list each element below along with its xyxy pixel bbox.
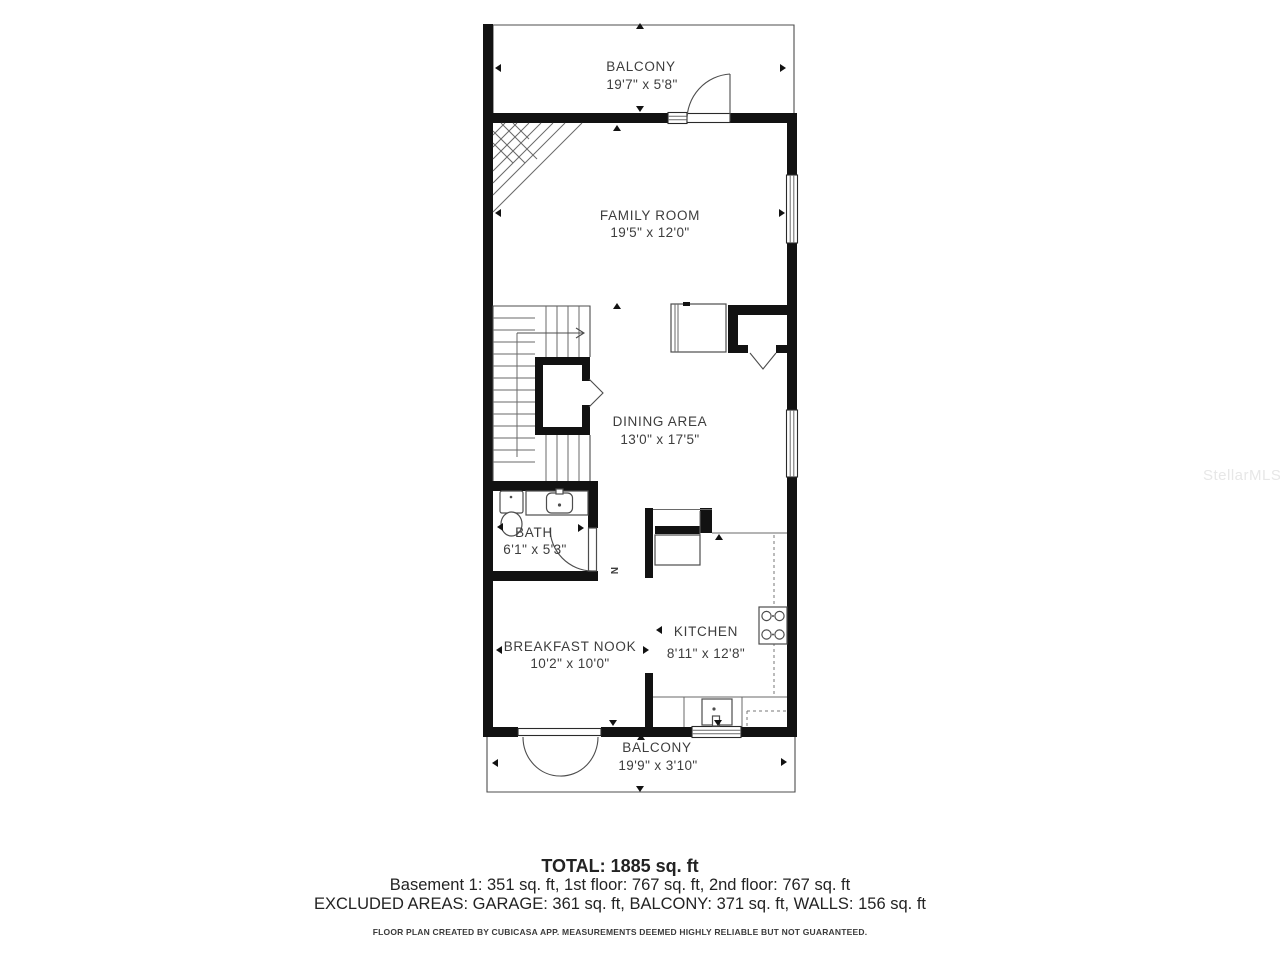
bath-vanity-sink [526, 489, 588, 515]
watermark: StellarMLS [1203, 467, 1280, 484]
dims-family-room: 19'5" x 12'0" [610, 225, 689, 240]
dims-bath: 6'1" x 5'3" [503, 542, 566, 557]
window-dining [787, 410, 798, 477]
window-kitchen [692, 727, 741, 738]
stair-hatch [493, 123, 582, 212]
dims-breakfast-nook: 10'2" x 10'0" [530, 656, 609, 671]
north-marker: N [608, 567, 619, 574]
french-door-threshold [518, 729, 601, 736]
label-kitchen: KITCHEN [674, 624, 738, 639]
total-area: TOTAL: 1885 sq. ft [0, 856, 1240, 876]
disclaimer-text: FLOOR PLAN CREATED BY CUBICASA APP. MEAS… [0, 927, 1240, 937]
window-family-room [787, 175, 798, 243]
label-balcony-top: BALCONY [606, 59, 675, 74]
label-balcony-bottom: BALCONY [622, 740, 691, 755]
dims-balcony-bottom: 19'9" x 3'10" [618, 758, 697, 773]
french-doors [523, 737, 598, 776]
dims-kitchen: 8'11" x 12'8" [667, 646, 745, 661]
balcony-outlines [487, 25, 795, 792]
dining-closet-door [750, 353, 776, 369]
label-bath: BATH [515, 525, 553, 540]
label-dining-area: DINING AREA [613, 414, 708, 429]
excluded-areas: EXCLUDED AREAS: GARAGE: 361 sq. ft, BALC… [0, 895, 1240, 914]
stove [759, 607, 787, 644]
dims-dining-area: 13'0" x 17'5" [620, 432, 699, 447]
floor-areas: Basement 1: 351 sq. ft, 1st floor: 767 s… [0, 876, 1240, 895]
floor-plan-page: N BALCONY 19'7" x 5'8" FAMILY ROOM 19'5"… [0, 0, 1280, 960]
window-top-balcony [668, 113, 687, 124]
dining-cabinet [671, 302, 726, 352]
refrigerator [655, 535, 700, 565]
area-summary: TOTAL: 1885 sq. ft Basement 1: 351 sq. f… [0, 856, 1240, 937]
walls [483, 24, 797, 737]
floor-plan-drawing: N BALCONY 19'7" x 5'8" FAMILY ROOM 19'5"… [0, 0, 1280, 960]
stair-closet-opening [589, 379, 603, 407]
label-family-room: FAMILY ROOM [600, 208, 700, 223]
dims-balcony-top: 19'7" x 5'8" [606, 77, 677, 92]
label-breakfast-nook: BREAKFAST NOOK [504, 639, 637, 654]
